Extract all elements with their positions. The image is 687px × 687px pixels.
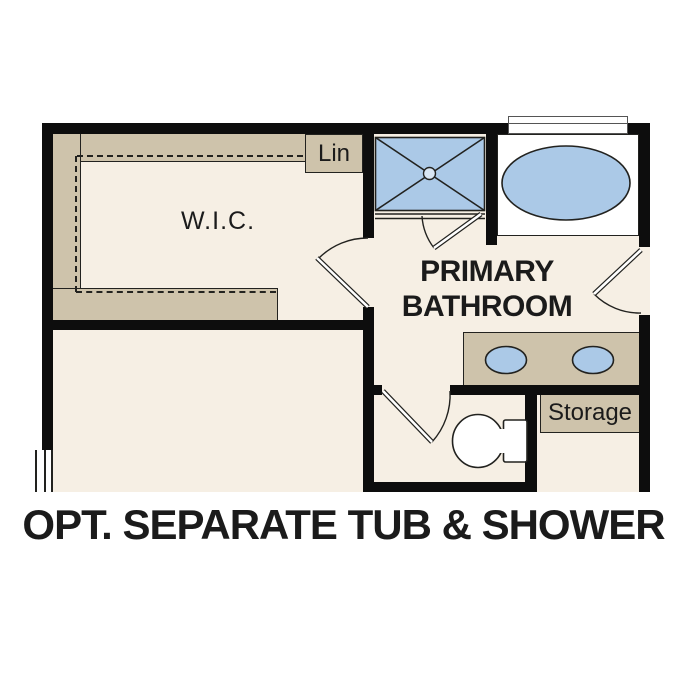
primary-bathroom-label-line2: BATHROOM (377, 289, 597, 324)
storage-label: Storage (540, 393, 640, 433)
shower (375, 138, 485, 219)
toilet (453, 415, 528, 468)
wic-door (317, 238, 368, 307)
bathroom-entry-door (594, 250, 641, 313)
sink-left-icon (486, 347, 527, 374)
plan-caption: OPT. SEPARATE TUB & SHOWER (0, 501, 687, 549)
wic-label: W.I.C. (138, 207, 298, 236)
tub (502, 146, 630, 220)
shower-drain-icon (424, 168, 436, 180)
sink-right-icon (573, 347, 614, 374)
primary-bathroom-label-line1: PRIMARY (377, 254, 597, 289)
floor-plan: W.I.C. Lin PRIMARY BATHROOM Storage OPT.… (0, 0, 687, 687)
toilet-neck (496, 429, 510, 453)
primary-bathroom-label: PRIMARY BATHROOM (377, 254, 597, 324)
linen-label: Lin (305, 134, 363, 173)
toilet-room-door (383, 391, 450, 442)
vanity-sinks (486, 347, 614, 374)
